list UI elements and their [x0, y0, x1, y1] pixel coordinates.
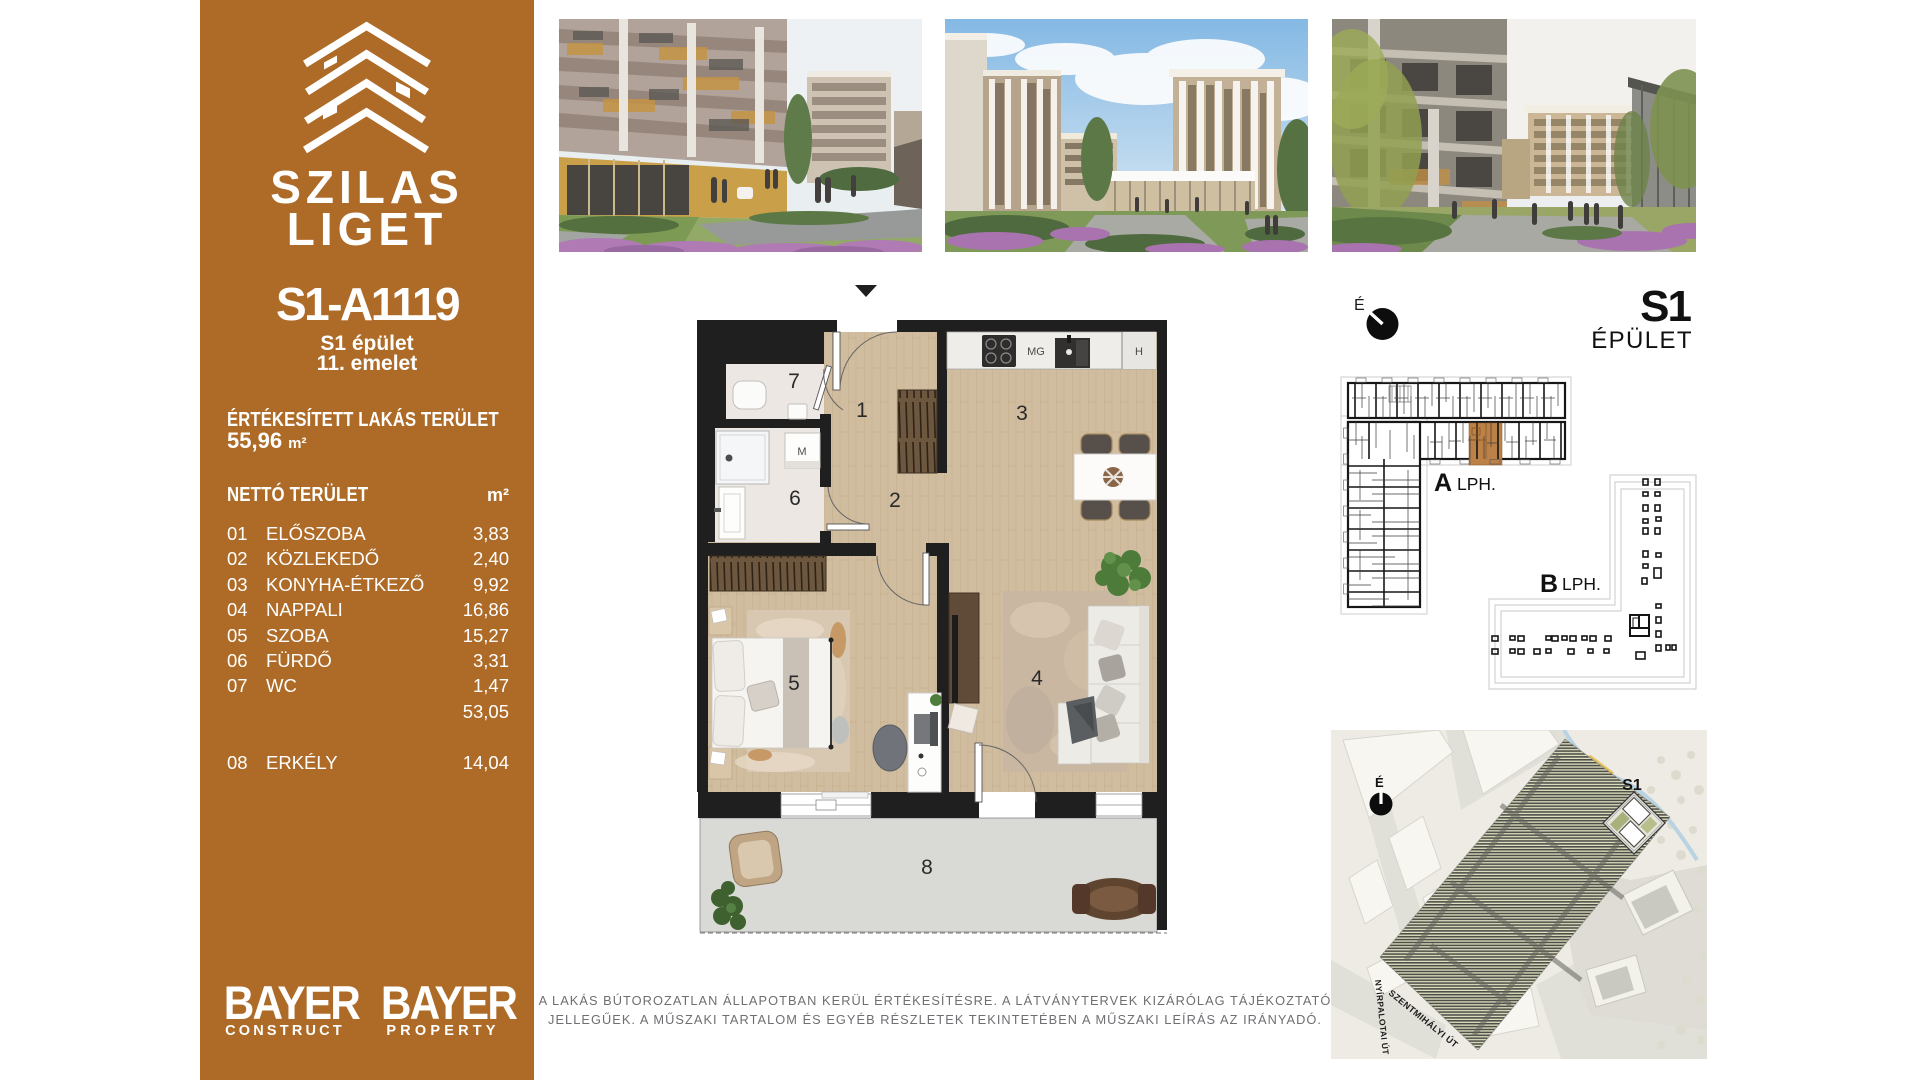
svg-text:6: 6: [789, 487, 801, 510]
svg-text:É: É: [1375, 775, 1384, 790]
svg-text:É: É: [1354, 295, 1365, 314]
svg-text:4: 4: [1031, 667, 1043, 690]
svg-text:1: 1: [856, 399, 868, 422]
svg-text:5: 5: [788, 672, 800, 695]
svg-text:2: 2: [889, 489, 901, 512]
svg-text:H: H: [1135, 346, 1143, 358]
svg-text:M: M: [797, 446, 806, 458]
svg-text:8: 8: [921, 856, 933, 879]
svg-text:3: 3: [1016, 402, 1028, 425]
svg-text:S1: S1: [1622, 777, 1642, 794]
svg-text:7: 7: [788, 370, 800, 393]
svg-text:MG: MG: [1027, 346, 1045, 358]
